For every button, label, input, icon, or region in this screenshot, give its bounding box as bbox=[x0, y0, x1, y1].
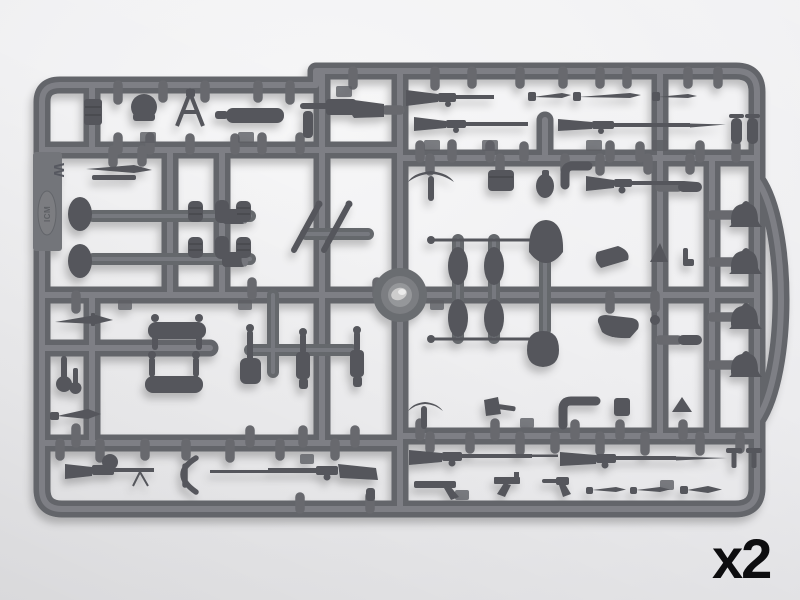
boot-wedge-parts bbox=[596, 243, 694, 268]
folding-frame-part bbox=[177, 89, 203, 126]
brand-tag: W ICM bbox=[33, 152, 67, 251]
sprue-letter: W bbox=[50, 163, 67, 178]
injection-hub bbox=[373, 268, 427, 322]
brand-logo-text: ICM bbox=[43, 206, 52, 222]
photo-of-model-kit-sprue: W ICM x2 bbox=[0, 0, 800, 600]
shovel-blade-up-part bbox=[529, 220, 563, 263]
ammo-box-part bbox=[488, 170, 514, 191]
submachine-gun-part bbox=[300, 99, 384, 138]
quantity-label: x2 bbox=[712, 526, 770, 591]
bayonet-row-parts bbox=[528, 92, 697, 101]
rifle-part bbox=[414, 117, 528, 133]
luger-pistol-part bbox=[542, 477, 571, 497]
stovepipe-elbow-part bbox=[565, 166, 588, 185]
ammo-clip-stack-part bbox=[84, 99, 102, 125]
carbine-part bbox=[406, 90, 494, 107]
sprue-illustration: W ICM bbox=[0, 0, 800, 600]
drum-machine-gun-part bbox=[65, 454, 154, 486]
lebel-rifle-part bbox=[210, 464, 378, 481]
bayonet-with-scabbard-part bbox=[86, 165, 152, 180]
hatchet-part bbox=[484, 397, 516, 416]
sprue: W ICM bbox=[33, 71, 781, 509]
grip-stub-part bbox=[366, 488, 375, 501]
bottom-bayonet-parts bbox=[586, 486, 722, 494]
long-rifle-with-bayonet-part bbox=[558, 119, 726, 134]
oval-canteen-parts bbox=[68, 197, 92, 278]
rifle-bottom-mid-part bbox=[409, 450, 558, 467]
pistol-holster-part bbox=[598, 315, 660, 338]
wire-frame-part bbox=[183, 458, 196, 492]
round-pouch-part bbox=[131, 94, 157, 121]
pickaxe-lower-part bbox=[408, 402, 443, 429]
elbow-lower-part bbox=[563, 401, 596, 425]
small-canteen-part bbox=[536, 170, 554, 198]
cylinder-case-part bbox=[215, 108, 284, 123]
shovel-blade-down-part bbox=[527, 331, 559, 367]
stick-grenade-part bbox=[56, 356, 82, 394]
